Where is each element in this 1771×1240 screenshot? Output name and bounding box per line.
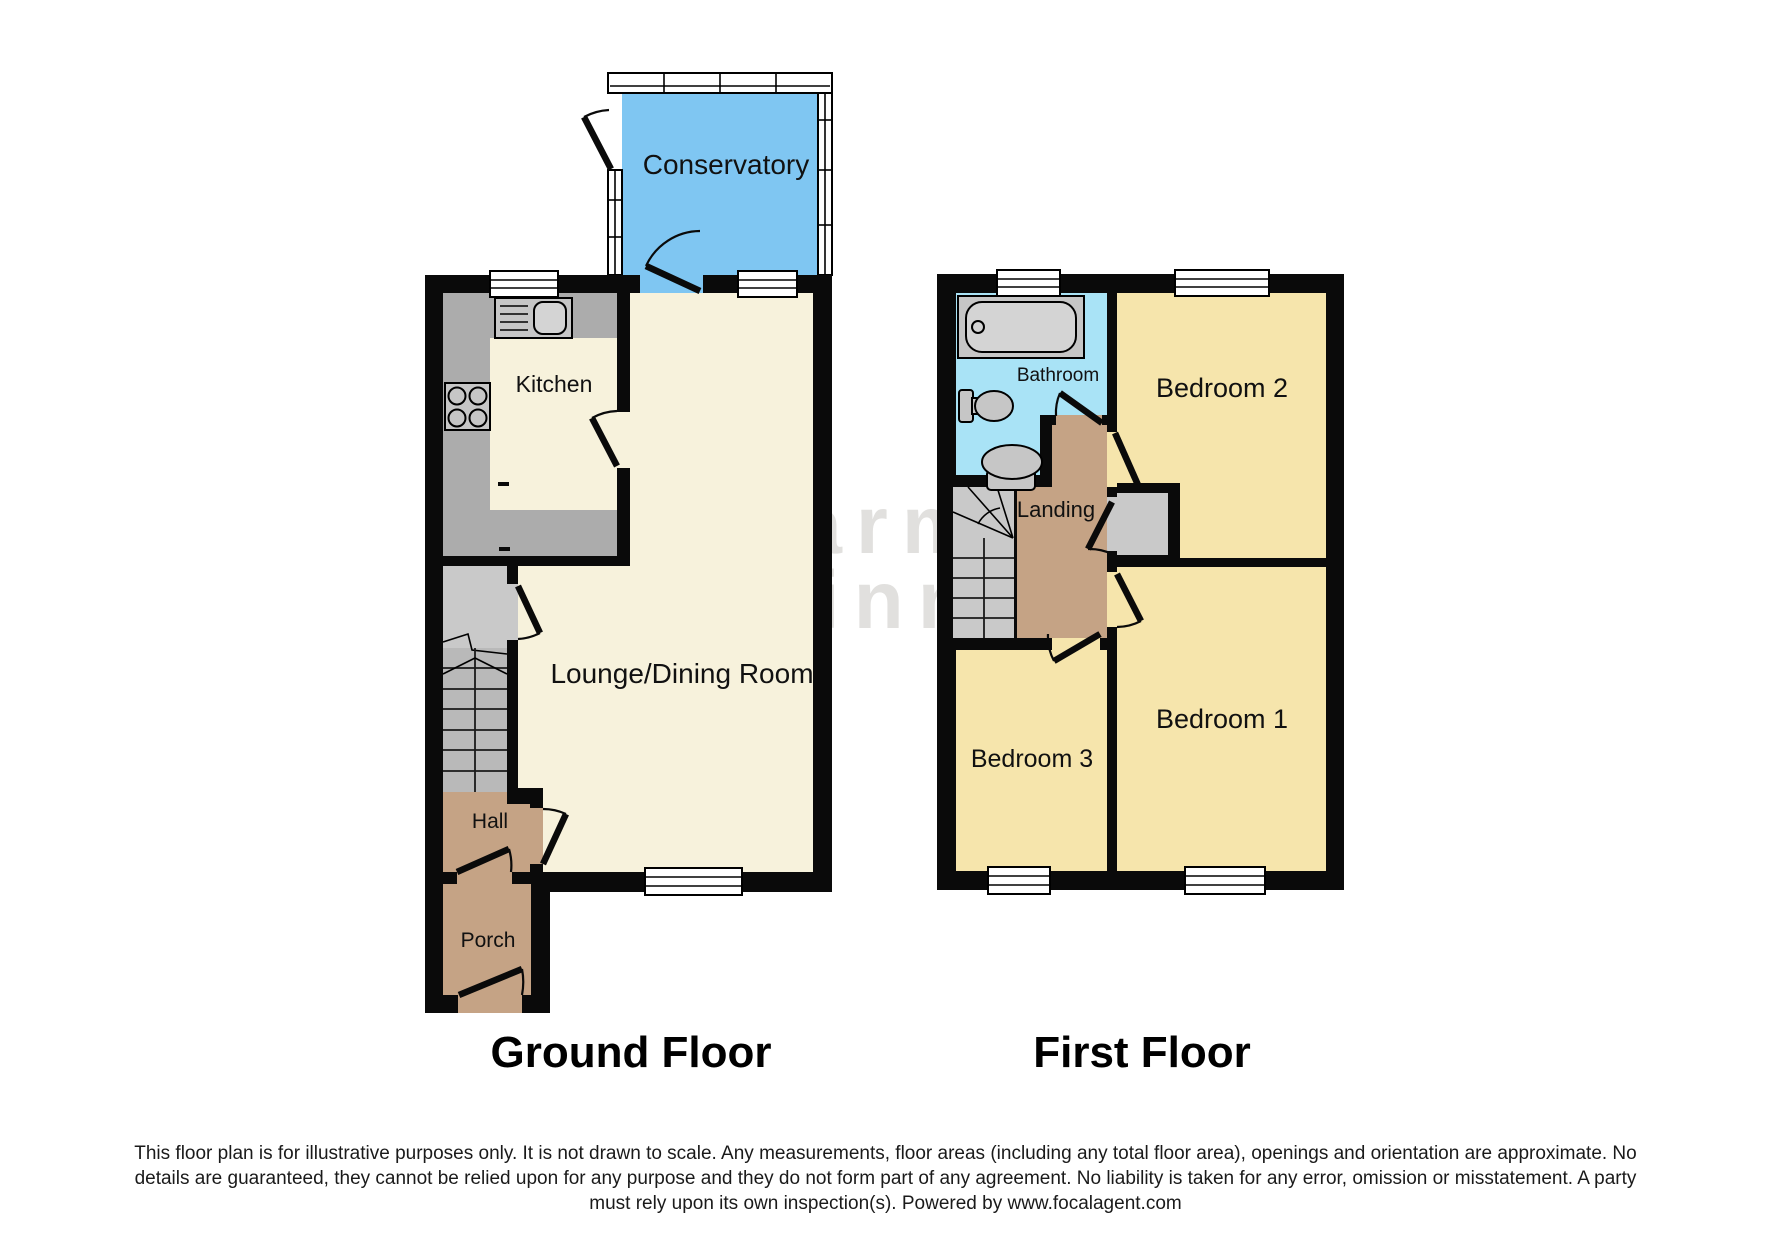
bathtub-inner — [966, 302, 1076, 352]
label-landing: Landing — [1017, 497, 1095, 522]
disclaimer-line-2: details are guaranteed, they cannot be r… — [0, 1166, 1771, 1191]
opening-front-door — [458, 995, 522, 1013]
label-kitchen: Kitchen — [516, 371, 593, 397]
lounge-bottom-window — [645, 868, 742, 895]
ground-floor-title: Ground Floor — [490, 1028, 771, 1077]
first-floor-title: First Floor — [1033, 1028, 1251, 1077]
opening-hall-porch-door — [457, 872, 512, 884]
kitchen-window — [490, 271, 558, 297]
opening-kitchen-door — [617, 412, 630, 468]
wall-below-kitchen — [425, 556, 630, 566]
label-lounge: Lounge/Dining Room — [550, 658, 813, 689]
wall-hall-corner — [507, 788, 543, 804]
kitchen-counter-bottom — [443, 510, 617, 556]
lounge-top-window — [738, 271, 797, 297]
sink-bowl — [534, 302, 566, 334]
cabinet-handle-1 — [498, 482, 509, 486]
bathroom-window — [997, 270, 1060, 296]
cabinet-handle-2 — [499, 547, 510, 551]
conservatory-exterior-door — [584, 117, 611, 169]
floorplan-canvas: Sharman Quinney — [0, 0, 1771, 1240]
hob — [445, 383, 490, 430]
wall-cupboard-bottom — [1107, 555, 1180, 563]
cupboard-interior — [1117, 493, 1168, 555]
disclaimer-line-3: must rely upon its own inspection(s). Po… — [0, 1191, 1771, 1216]
label-hall: Hall — [472, 810, 508, 833]
label-bathroom: Bathroom — [1017, 365, 1099, 386]
bedroom1-window — [1185, 867, 1265, 894]
room-conservatory — [622, 93, 818, 275]
label-porch: Porch — [461, 929, 516, 952]
basin — [982, 445, 1042, 490]
opening-stairs-door — [507, 584, 518, 640]
bedroom2-window — [1175, 270, 1269, 296]
label-bedroom1: Bedroom 1 — [1156, 704, 1288, 734]
wall-cupboard-right — [1168, 483, 1180, 563]
disclaimer: This floor plan is for illustrative purp… — [0, 1141, 1771, 1216]
label-bedroom3: Bedroom 3 — [971, 745, 1093, 773]
opening-bedroom1-door — [1107, 572, 1117, 627]
label-conservatory: Conservatory — [643, 149, 810, 180]
disclaimer-line-1: This floor plan is for illustrative purp… — [0, 1141, 1771, 1166]
label-bedroom2: Bedroom 2 — [1156, 373, 1288, 403]
opening-hall-lounge-door — [530, 808, 543, 864]
toilet — [959, 390, 1013, 422]
bedroom3-window — [988, 867, 1050, 894]
floorplan-page: Sharman Quinney — [0, 0, 1771, 1240]
wall-central-lower — [1107, 627, 1117, 871]
wall-central-upper — [1107, 293, 1117, 432]
